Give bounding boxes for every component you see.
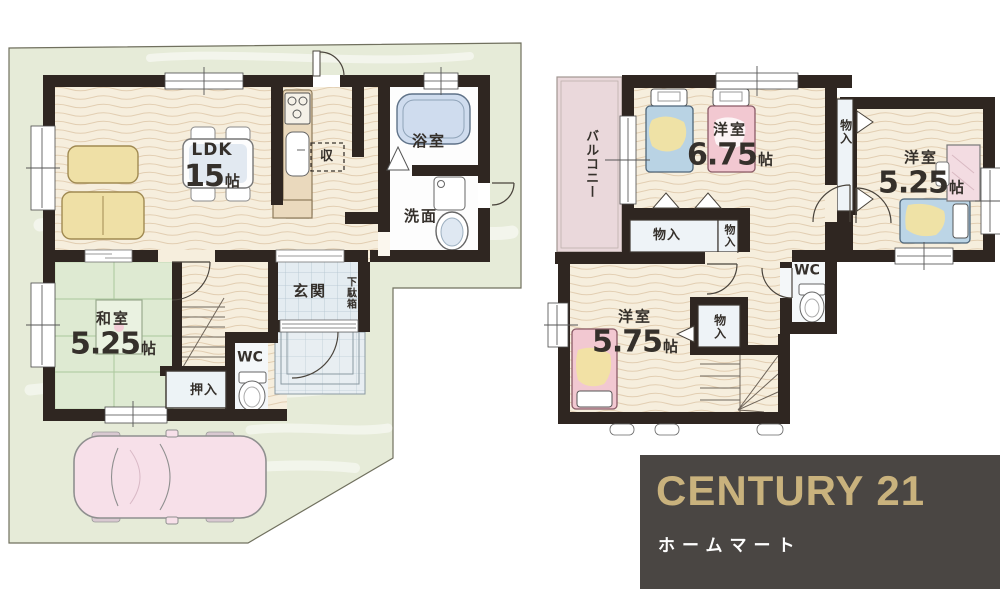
label-oshiire: 押入 [190, 384, 218, 398]
label-storage1: 物入 [838, 119, 851, 145]
label-room1: 洋室 6.75帖 [687, 121, 773, 171]
label-storage2: 物入 [723, 224, 735, 248]
label-entrance: 玄関 [293, 283, 327, 300]
toilet-1f-icon [239, 372, 266, 411]
label-room2: 洋室 5.25帖 [878, 149, 964, 199]
washing-machine-icon [434, 177, 465, 210]
car-icon [74, 430, 266, 524]
logo-brand-text: CENTURY 21 [656, 467, 925, 515]
label-wc-2f: WC [794, 263, 820, 278]
logo-company-text: ホームマート [658, 531, 802, 556]
label-shoebox: 下駄箱 [345, 277, 356, 310]
label-pantry: 収 [320, 150, 334, 164]
sink-icon [436, 212, 468, 250]
label-washroom: 洗面 [404, 208, 438, 225]
label-storage3: 物入 [653, 229, 681, 243]
label-tatami-room: 和室 5.25帖 [70, 310, 156, 360]
toilet-2f-icon [799, 284, 825, 322]
floor-plan-image: LDK 15帖 収 浴室 洗面 玄関 下駄箱 和室 5.25帖 押入 WC バル… [0, 0, 1000, 589]
label-bath: 浴室 [412, 133, 446, 150]
century21-logo: CENTURY 21 ホームマート [640, 455, 1000, 589]
bed-icon [900, 199, 970, 243]
label-storage4: 物入 [712, 314, 725, 340]
label-balcony: バルコニー [583, 129, 597, 199]
label-wc-1f: WC [237, 350, 263, 365]
label-ldk: LDK 15帖 [184, 141, 240, 193]
sofa-icon [62, 146, 144, 239]
bed-icon [646, 89, 693, 172]
label-room3: 洋室 5.75帖 [592, 308, 678, 358]
entrance-porch [275, 332, 365, 394]
